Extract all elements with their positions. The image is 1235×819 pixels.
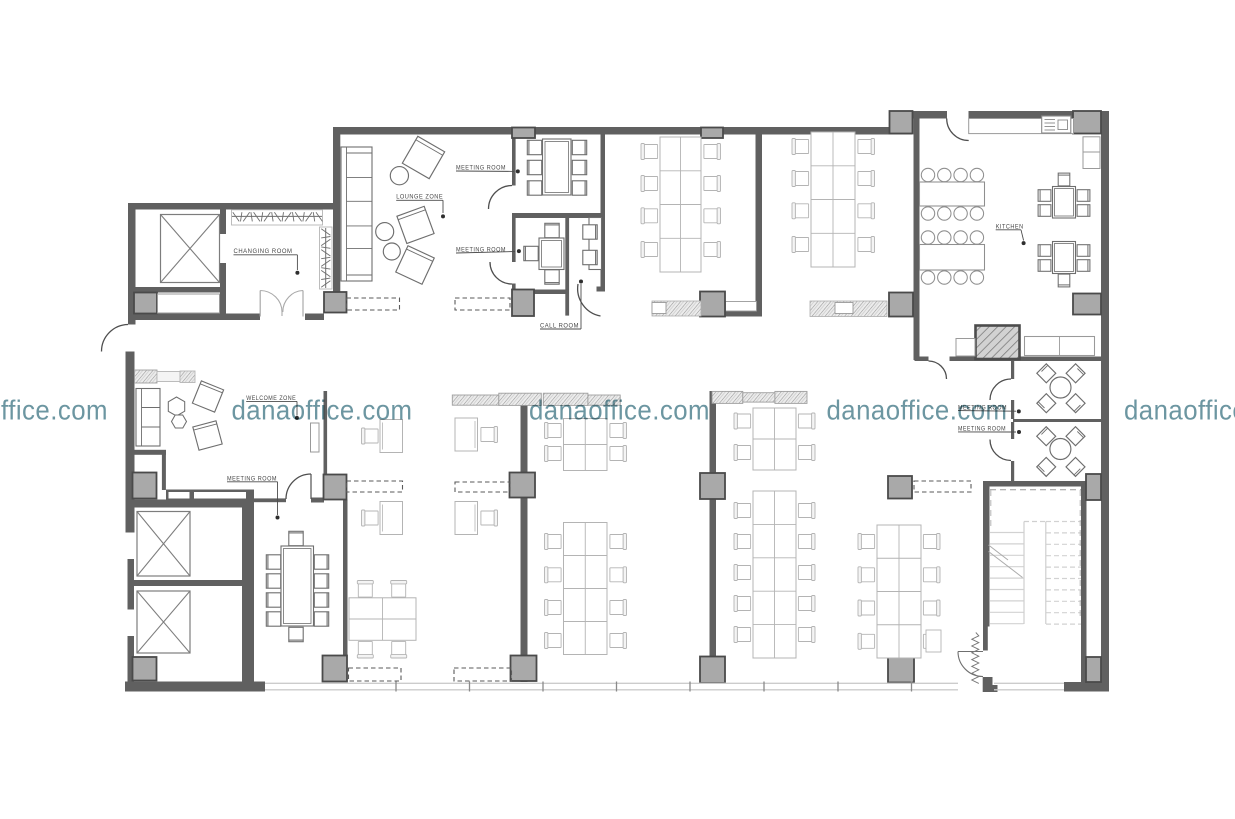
svg-text:MEETING ROOM: MEETING ROOM (227, 475, 277, 482)
svg-text:MEETING ROOM: MEETING ROOM (958, 426, 1006, 433)
svg-text:KITCHEN: KITCHEN (996, 223, 1024, 230)
svg-text:CHANGING ROOM: CHANGING ROOM (234, 248, 293, 255)
svg-text:LOUNGE ZONE: LOUNGE ZONE (396, 194, 443, 201)
svg-text:danaoffice.com: danaoffice.com (0, 395, 108, 426)
svg-text:danaoffice.com: danaoffice.com (232, 395, 413, 426)
svg-text:CALL ROOM: CALL ROOM (540, 323, 579, 330)
svg-text:danaoffice.com: danaoffice.com (827, 395, 1008, 426)
svg-text:MEETING ROOM: MEETING ROOM (456, 165, 506, 172)
svg-text:danaoffice.com: danaoffice.com (1124, 395, 1235, 426)
svg-text:danaoffice.com: danaoffice.com (529, 395, 710, 426)
